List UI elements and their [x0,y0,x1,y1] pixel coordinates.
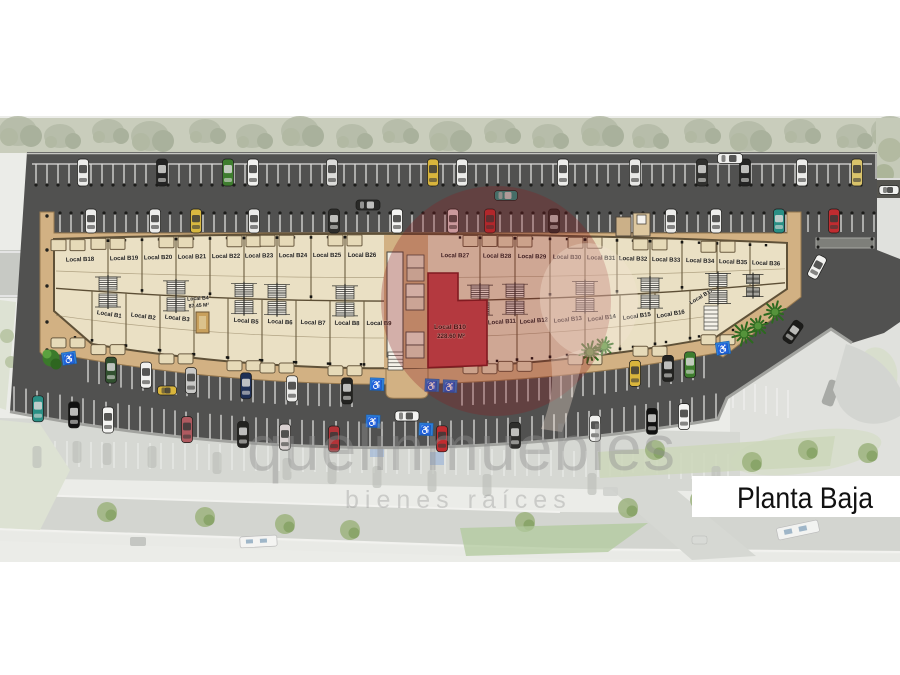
svg-text:Local B23: Local B23 [245,253,274,259]
svg-text:♿: ♿ [717,343,731,357]
svg-text:♿: ♿ [371,379,383,391]
svg-text:Local B33: Local B33 [652,257,681,264]
svg-text:♿: ♿ [63,353,77,367]
svg-text:Local B24: Local B24 [279,253,308,259]
svg-text:Local B7: Local B7 [300,320,326,327]
svg-text:Local B26: Local B26 [348,253,377,259]
svg-text:Local B21: Local B21 [178,254,207,261]
svg-text:Local B18: Local B18 [66,257,95,264]
svg-text:Local B8: Local B8 [334,321,360,328]
svg-text:Local B25: Local B25 [313,253,342,259]
svg-text:Local B19: Local B19 [110,256,139,263]
svg-text:bienes raíces: bienes raíces [345,486,572,514]
svg-text:Planta Baja: Planta Baja [737,482,873,515]
svg-text:quelinmuebles: quelinmuebles [247,412,675,484]
svg-text:Local B34: Local B34 [686,258,715,265]
svg-text:Local B36: Local B36 [752,260,781,267]
svg-text:Local B20: Local B20 [144,255,173,262]
svg-text:Local B22: Local B22 [212,254,241,260]
svg-text:Local B35: Local B35 [719,259,748,266]
